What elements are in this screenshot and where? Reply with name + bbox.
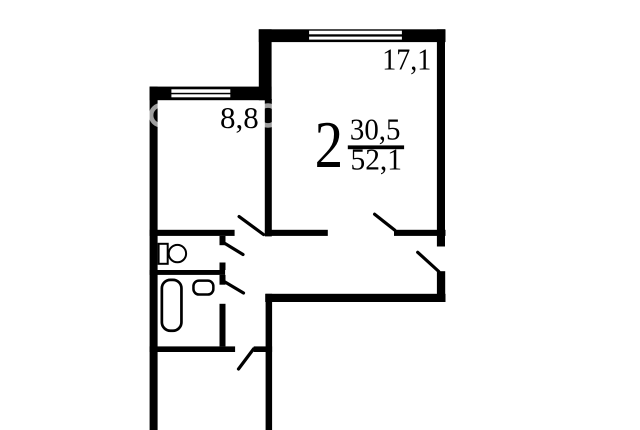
svg-text:8,8: 8,8: [220, 100, 259, 135]
svg-text:17,1: 17,1: [382, 41, 431, 76]
svg-text:2: 2: [315, 108, 344, 182]
svg-text:52,1: 52,1: [351, 142, 403, 177]
